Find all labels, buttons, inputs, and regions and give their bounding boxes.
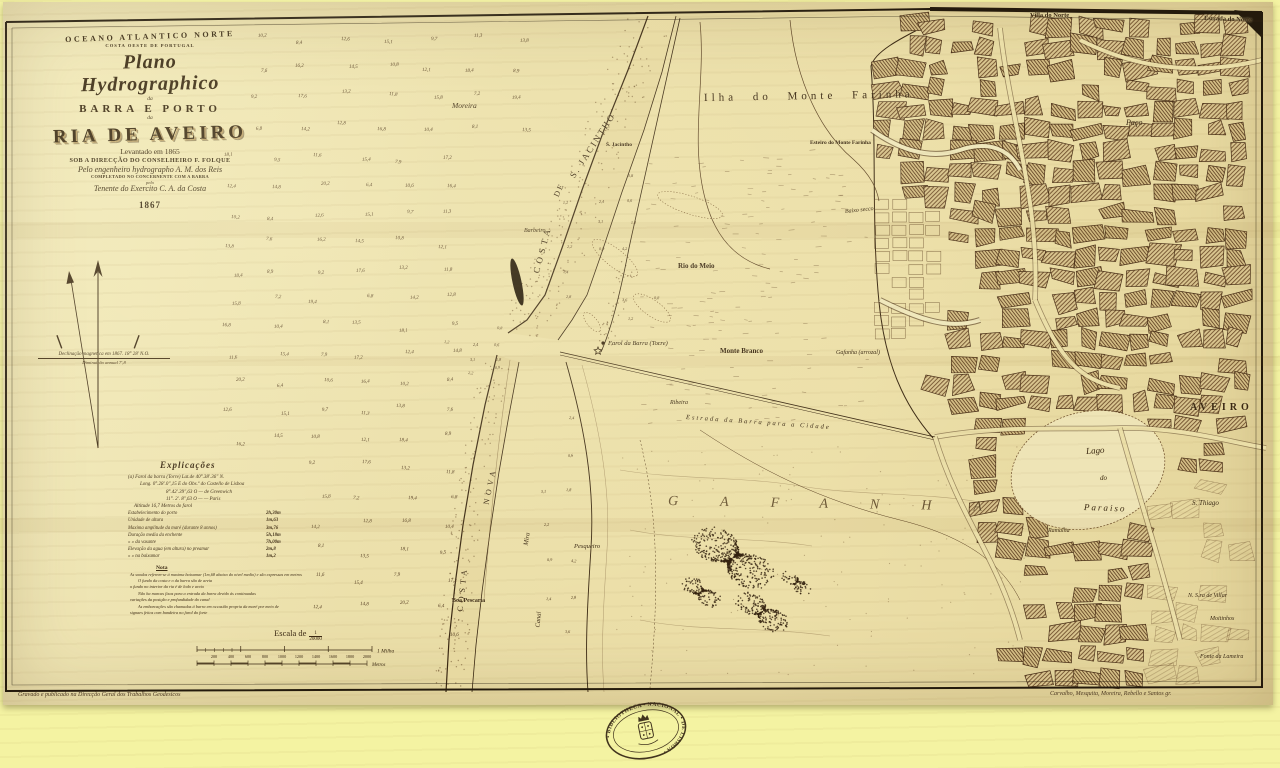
svg-text:9,2: 9,2	[309, 461, 316, 466]
svg-text:19,4: 19,4	[308, 300, 317, 305]
svg-text:10,8: 10,8	[311, 435, 320, 440]
svg-text:10,8: 10,8	[390, 63, 399, 68]
legend-table-row: Maxima amplitude da maré (durante 8 anno…	[128, 525, 278, 532]
legend-nota-lines: As sondas referem-se á maxima baixamar (…	[128, 572, 278, 617]
svg-text:2,2: 2,2	[468, 370, 474, 376]
svg-text:10,2: 10,2	[258, 34, 267, 39]
svg-text:18,4: 18,4	[399, 438, 408, 443]
svg-text:1400: 1400	[312, 654, 320, 659]
svg-text:14,5: 14,5	[349, 65, 358, 70]
svg-text:8,4: 8,4	[296, 41, 303, 46]
svg-text:9,7: 9,7	[407, 210, 414, 215]
svg-text:6,4: 6,4	[366, 183, 373, 188]
svg-text:0,8: 0,8	[628, 173, 634, 179]
legend-line: Long. 0°.28′.0″,15 E do Obs.º do Castell…	[128, 481, 278, 488]
svg-text:7,9: 7,9	[395, 160, 402, 165]
svg-text:6,8: 6,8	[451, 495, 458, 500]
svg-text:10,4: 10,4	[445, 525, 454, 530]
svg-text:16,8: 16,8	[402, 519, 411, 524]
legend-nota-heading: Nota	[156, 565, 278, 571]
legend-line: 11°. 2′. 8″,63 O — — Paris	[128, 496, 278, 503]
svg-text:8,4: 8,4	[267, 217, 274, 222]
svg-text:17,2: 17,2	[448, 579, 457, 584]
svg-text:13,5: 13,5	[360, 554, 370, 560]
crown-icon	[637, 713, 649, 722]
svg-text:15,1: 15,1	[281, 412, 290, 417]
svg-text:1 Milha: 1 Milha	[377, 649, 395, 655]
svg-text:14,2: 14,2	[301, 127, 311, 133]
svg-text:10,2: 10,2	[231, 215, 241, 221]
svg-text:12,8: 12,8	[363, 519, 372, 524]
legend-table-row: Elevação da agua (em altura) no preamar2…	[128, 546, 278, 553]
svg-text:12,4: 12,4	[405, 350, 414, 355]
legend-table-row: » » na baixamar1m,2	[128, 553, 278, 560]
svg-text:20,2: 20,2	[400, 601, 409, 606]
svg-text:7,2: 7,2	[474, 92, 481, 97]
svg-text:15,4: 15,4	[354, 581, 363, 586]
svg-text:6,4: 6,4	[277, 384, 284, 389]
svg-text:15,8: 15,8	[434, 96, 443, 101]
svg-text:14,2: 14,2	[311, 525, 320, 530]
svg-text:1800: 1800	[346, 654, 354, 659]
svg-text:14,2: 14,2	[410, 296, 419, 301]
svg-text:15,8: 15,8	[322, 494, 332, 500]
svg-text:16,2: 16,2	[295, 64, 304, 69]
svg-text:600: 600	[245, 654, 251, 659]
svg-text:14,8: 14,8	[360, 602, 369, 607]
svg-text:400: 400	[228, 654, 234, 659]
svg-text:11,8: 11,8	[446, 470, 455, 475]
svg-text:14,8: 14,8	[453, 349, 462, 354]
svg-text:2,4: 2,4	[569, 415, 575, 421]
scale-caption-text: Escala de	[274, 628, 306, 638]
svg-text:3,1: 3,1	[470, 357, 476, 363]
library-stamp: • BIBLIOTHECA • NACIONAL • DE LISBOA •	[594, 698, 698, 768]
svg-text:8,9: 8,9	[445, 432, 452, 437]
svg-text:6,8: 6,8	[256, 127, 263, 132]
svg-text:7,2: 7,2	[275, 295, 282, 300]
svg-text:11,6: 11,6	[316, 573, 325, 578]
svg-text:18,4: 18,4	[234, 273, 244, 279]
title-direction: SOB A DIRECÇÃO DO CONSELHEIRO F. FOLQUE	[52, 158, 248, 165]
nota-line: signaes feitos com bandeira no farol do …	[128, 610, 278, 616]
svg-text:800: 800	[262, 654, 268, 659]
svg-text:16,4: 16,4	[361, 380, 370, 385]
declination-line2: Diminuição annual 7′,8	[38, 359, 170, 365]
svg-text:2,8: 2,8	[571, 595, 578, 601]
svg-text:3,1: 3,1	[541, 489, 547, 495]
legend-table-row: » » da vasante7h,00m	[128, 539, 278, 546]
svg-text:7,6: 7,6	[261, 69, 268, 74]
svg-text:13,8: 13,8	[396, 404, 405, 409]
magnetic-declination-note: Declinação magnetica em 1867. 18° 28′ N.…	[38, 352, 170, 365]
svg-text:0,6: 0,6	[568, 453, 575, 459]
svg-text:12,1: 12,1	[438, 245, 447, 251]
svg-text:1,8: 1,8	[566, 487, 572, 493]
svg-text:8,1: 8,1	[323, 320, 329, 325]
declination-line1: Declinação magnetica em 1867. 18° 28′ N.…	[38, 352, 170, 359]
svg-text:8,9: 8,9	[267, 270, 274, 275]
svg-text:19,4: 19,4	[512, 95, 522, 101]
svg-text:8,9: 8,9	[513, 69, 520, 74]
svg-text:11,8: 11,8	[389, 92, 398, 98]
title-year: 1867	[52, 200, 248, 210]
svg-text:10,2: 10,2	[400, 382, 409, 387]
svg-text:3,6: 3,6	[565, 629, 571, 635]
svg-text:11,3: 11,3	[361, 411, 370, 417]
svg-text:15,8: 15,8	[232, 302, 241, 307]
svg-text:15,4: 15,4	[280, 352, 290, 358]
svg-text:11,3: 11,3	[443, 209, 452, 215]
svg-text:1000: 1000	[278, 654, 286, 659]
svg-text:9,7: 9,7	[431, 37, 438, 42]
svg-text:12,1: 12,1	[422, 68, 431, 73]
svg-text:13,5: 13,5	[352, 321, 361, 326]
svg-text:8,1: 8,1	[318, 544, 324, 549]
svg-text:7,2: 7,2	[353, 496, 360, 501]
svg-text:17,6: 17,6	[362, 460, 371, 465]
svg-text:13,2: 13,2	[401, 466, 410, 471]
legend-line: (a) Farol da barra (Torre) Lat.de 40°.38…	[128, 474, 278, 481]
svg-text:1,2: 1,2	[444, 339, 450, 345]
svg-text:9,2: 9,2	[318, 271, 325, 276]
svg-text:0,9: 0,9	[547, 557, 553, 563]
svg-text:13,8: 13,8	[225, 244, 235, 250]
svg-text:4,2: 4,2	[622, 246, 627, 252]
svg-text:12,1: 12,1	[361, 438, 370, 443]
svg-text:2,4: 2,4	[473, 342, 478, 348]
svg-text:4,2: 4,2	[571, 558, 577, 564]
legend-line: Altitude 16,7 Metros do farol	[128, 503, 278, 510]
svg-text:1200: 1200	[295, 654, 303, 659]
svg-text:3,6: 3,6	[622, 297, 629, 303]
svg-text:1,4: 1,4	[546, 596, 552, 602]
legend-heading: Explicações	[160, 460, 278, 470]
svg-text:16,2: 16,2	[317, 238, 326, 243]
svg-text:13,8: 13,8	[520, 39, 529, 44]
svg-text:10,6: 10,6	[450, 633, 459, 638]
svg-text:14,8: 14,8	[272, 185, 281, 190]
svg-text:13,5: 13,5	[522, 128, 531, 133]
svg-text:12,4: 12,4	[313, 605, 323, 611]
svg-text:11,6: 11,6	[229, 355, 238, 361]
svg-text:9,5: 9,5	[274, 158, 281, 163]
legend-table-row: Estabelecimento do porto2h,30m	[128, 510, 278, 517]
svg-text:0,8: 0,8	[497, 325, 504, 332]
svg-text:8,1: 8,1	[472, 125, 478, 130]
svg-text:15,4: 15,4	[362, 158, 371, 163]
title-surveyed: Levantado em 1865	[52, 148, 248, 156]
title-block: OCEANO ATLANTICO NORTE COSTA OESTE DE PO…	[52, 33, 248, 210]
svg-text:10,4: 10,4	[274, 325, 283, 330]
svg-text:14,5: 14,5	[274, 434, 283, 439]
svg-text:17,6: 17,6	[298, 94, 308, 100]
title-barra-porto: BARRA E PORTO	[52, 103, 248, 115]
title-ria-de-aveiro: RIA DE AVEIRO	[52, 121, 248, 147]
legend-table-row: Duração media da enchente5h,18m	[128, 532, 278, 539]
svg-text:12,6: 12,6	[223, 408, 232, 413]
svg-text:2000: 2000	[363, 654, 371, 659]
svg-text:0,6: 0,6	[627, 198, 633, 204]
svg-text:Metros: Metros	[371, 663, 386, 668]
svg-text:12,8: 12,8	[447, 293, 456, 298]
svg-text:19,4: 19,4	[408, 496, 417, 501]
svg-text:18,1: 18,1	[399, 329, 408, 334]
legend-explicacoes: Explicações (a) Farol da barra (Torre) L…	[128, 460, 278, 617]
svg-text:13,2: 13,2	[399, 266, 408, 271]
svg-text:10,6: 10,6	[405, 184, 414, 189]
svg-text:11,3: 11,3	[474, 34, 483, 39]
svg-text:12,6: 12,6	[315, 213, 325, 219]
svg-text:2,2: 2,2	[544, 522, 549, 528]
svg-text:13,2: 13,2	[342, 90, 351, 95]
svg-text:12,6: 12,6	[341, 37, 350, 42]
svg-text:7,9: 7,9	[321, 353, 328, 358]
stamp-svg: • BIBLIOTHECA • NACIONAL • DE LISBOA •	[594, 698, 698, 764]
title-plan: Plano Hydrographico	[52, 49, 249, 97]
svg-text:12,8: 12,8	[337, 121, 346, 126]
svg-text:14,5: 14,5	[355, 239, 364, 244]
svg-text:6,8: 6,8	[367, 294, 374, 299]
svg-text:11,8: 11,8	[444, 268, 453, 273]
svg-text:18,4: 18,4	[465, 69, 474, 74]
legend-tide-table: Estabelecimento do porto2h,30mUnidade de…	[128, 510, 278, 560]
svg-text:20,2: 20,2	[321, 182, 330, 187]
shield-icon	[638, 721, 654, 739]
legend-position-lines: (a) Farol da barra (Torre) Lat.de 40°.38…	[128, 474, 278, 510]
svg-text:10,6: 10,6	[324, 378, 334, 384]
svg-text:1600: 1600	[329, 654, 337, 659]
svg-text:15,1: 15,1	[365, 212, 374, 218]
svg-text:10,4: 10,4	[424, 128, 433, 133]
scale-ratio: 120000	[309, 631, 322, 643]
credit-publisher: Gravado e publicado na Direcção Geral do…	[18, 692, 180, 698]
svg-text:9,7: 9,7	[322, 407, 329, 413]
legend-table-row: Unidade de altura1m,63	[128, 517, 278, 524]
svg-text:7,9: 7,9	[394, 573, 401, 578]
svg-text:17,6: 17,6	[356, 269, 365, 274]
svg-text:10,8: 10,8	[395, 236, 404, 241]
svg-text:7,6: 7,6	[447, 408, 454, 413]
svg-text:20,2: 20,2	[236, 378, 245, 383]
legend-line: 8°.42′.39″,63 O — de Greenwich	[128, 489, 278, 496]
title-of2: da	[52, 115, 248, 121]
svg-text:9,5: 9,5	[452, 322, 459, 327]
svg-text:17,2: 17,2	[354, 356, 363, 361]
svg-text:200: 200	[211, 654, 217, 659]
svg-text:16,8: 16,8	[377, 127, 387, 133]
svg-text:18,1: 18,1	[400, 547, 409, 553]
svg-text:16,4: 16,4	[447, 184, 456, 189]
title-lieutenant: Tenente do Exercito C. A. da Costa	[52, 185, 248, 194]
svg-text:8,4: 8,4	[447, 378, 454, 383]
nautical-chart-scan: 10,28,412,615,19,711,313,87,616,214,510,…	[0, 0, 1280, 768]
svg-text:7,6: 7,6	[266, 237, 273, 242]
svg-text:1,2: 1,2	[563, 200, 569, 206]
credit-engravers: Carvalho, Mesquita, Moreira, Rebello e S…	[1050, 691, 1171, 697]
svg-text:9,2: 9,2	[251, 95, 258, 100]
svg-text:17,2: 17,2	[443, 156, 452, 161]
svg-text:15,1: 15,1	[384, 40, 393, 45]
svg-text:11,6: 11,6	[313, 153, 322, 159]
svg-text:16,2: 16,2	[236, 442, 246, 448]
svg-text:16,8: 16,8	[222, 323, 231, 328]
scale-caption: Escala de120000	[238, 628, 358, 642]
svg-text:0,6: 0,6	[494, 342, 500, 348]
svg-text:1,2: 1,2	[628, 316, 633, 322]
svg-text:9,5: 9,5	[440, 550, 447, 556]
svg-text:6,4: 6,4	[438, 604, 445, 609]
